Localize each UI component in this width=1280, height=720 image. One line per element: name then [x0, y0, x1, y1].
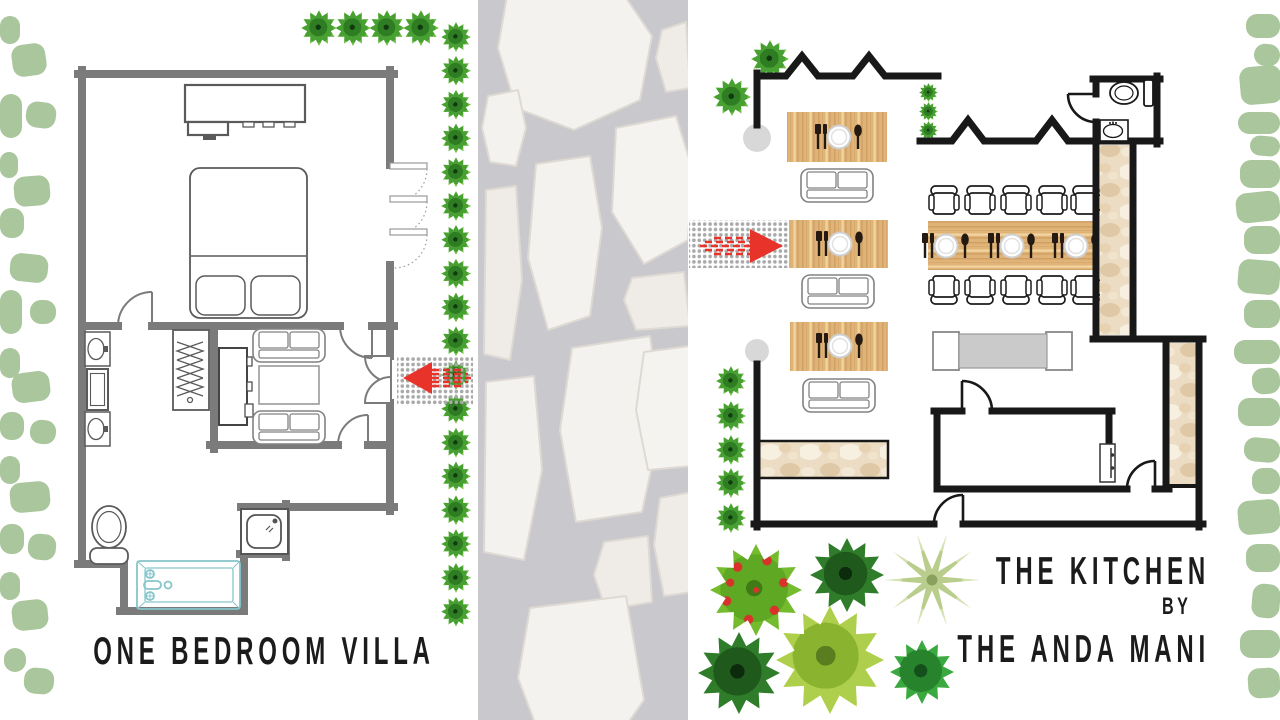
dresser: [185, 85, 305, 140]
sofa: [253, 411, 325, 444]
wc-sink: [1100, 120, 1128, 141]
bench-sofa: [803, 379, 875, 412]
site-plan-poster: ONE BEDROOM VILLA THE KITCHEN BY THE AND…: [0, 0, 1280, 720]
tv-console: [219, 348, 253, 425]
bench-sofa: [802, 275, 874, 308]
coffee-table: [259, 366, 319, 404]
kitchen-plan: [689, 56, 1203, 527]
planter: [745, 339, 769, 363]
shower: [241, 509, 288, 554]
kitchen-title-line1: THE KITCHEN: [938, 550, 1210, 594]
pillow: [251, 276, 300, 315]
entrance-double-door: [365, 356, 391, 403]
fridge: [1100, 444, 1115, 482]
sofa: [253, 329, 325, 362]
toilet: [90, 506, 128, 564]
louvre-windows: [390, 163, 427, 268]
villa-title: ONE BEDROOM VILLA: [93, 630, 391, 674]
kitchen-title-block: THE KITCHEN BY THE ANDA MANI: [870, 550, 1210, 662]
kitchen-title-line3: THE ANDA MANI: [938, 628, 1210, 672]
villa-plan: [78, 70, 473, 611]
sink-vanity-top: [85, 332, 110, 366]
mirror: [87, 369, 108, 410]
sink-vanity-bottom: [85, 412, 110, 446]
marble-counter: [758, 441, 888, 478]
bathtub: [137, 561, 240, 609]
kitchen-title-line2: BY: [921, 594, 1210, 622]
wc-toilet: [1110, 80, 1153, 106]
marble-counter-vertical: [1169, 343, 1196, 485]
bench-sofa: [801, 169, 873, 202]
marble-corridor: [1100, 145, 1129, 335]
wardrobe-with-hangers: [173, 330, 209, 410]
king-bed: [190, 168, 307, 318]
prep-table: [933, 332, 1072, 370]
pillow: [196, 276, 245, 315]
